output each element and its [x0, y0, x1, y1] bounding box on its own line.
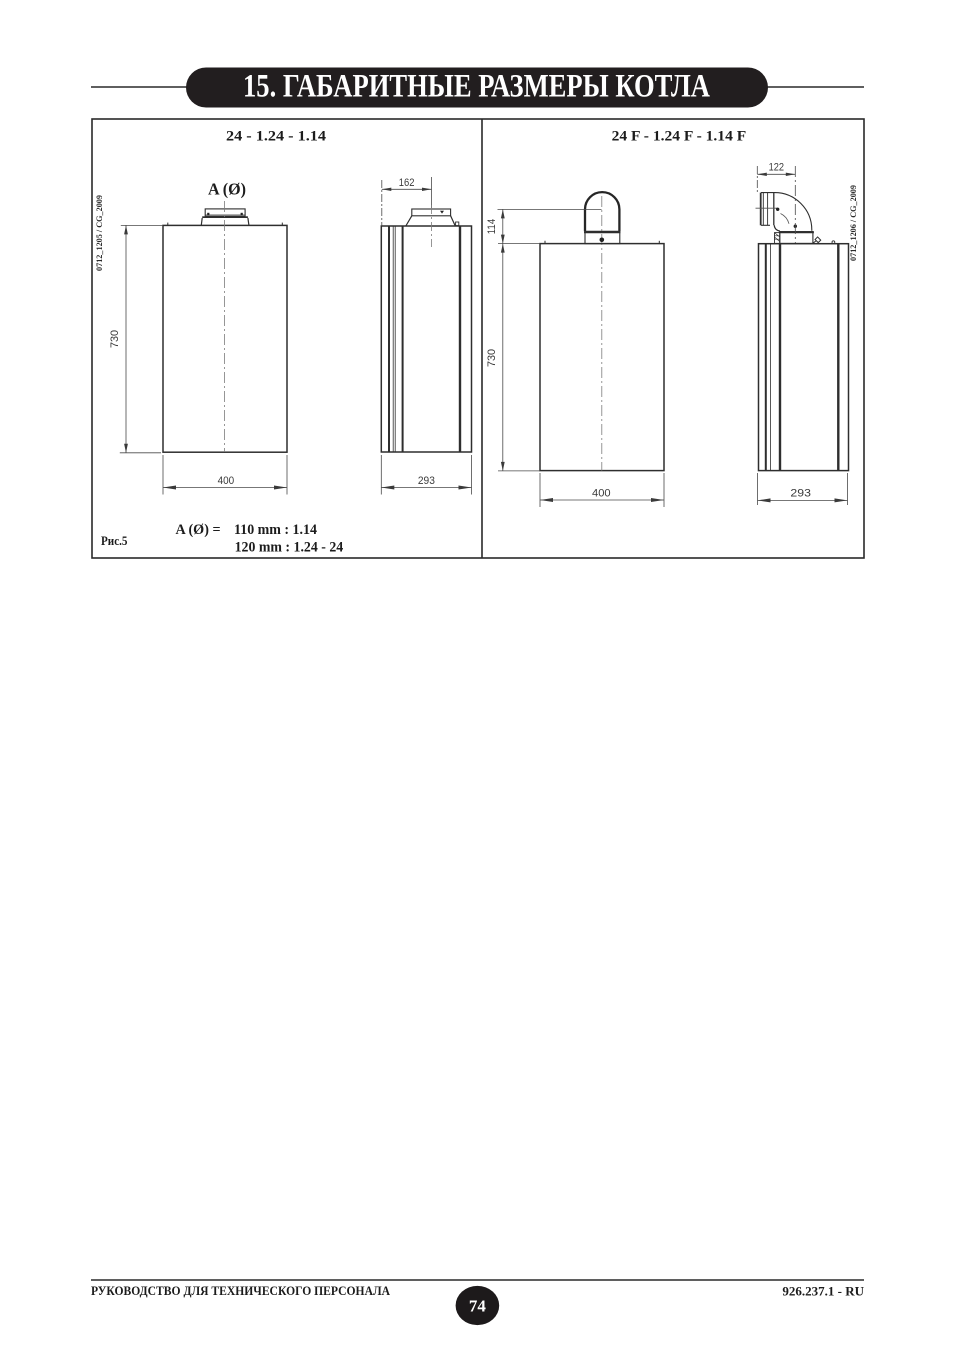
svg-text:400: 400	[218, 475, 235, 487]
svg-text:74: 74	[469, 1297, 487, 1316]
svg-text:A (Ø) =: A (Ø) =	[176, 522, 221, 538]
svg-text:730: 730	[486, 349, 498, 367]
svg-text:0712_1206 / CG_2009: 0712_1206 / CG_2009	[849, 185, 858, 261]
svg-text:730: 730	[109, 330, 121, 348]
svg-text:293: 293	[790, 488, 811, 500]
svg-text:400: 400	[592, 488, 611, 500]
svg-text:162: 162	[399, 177, 415, 189]
svg-text:122: 122	[769, 162, 784, 174]
svg-text:A (Ø): A (Ø)	[208, 180, 246, 199]
svg-text:293: 293	[418, 475, 435, 487]
svg-text:120 mm : 1.24 - 24: 120 mm : 1.24 - 24	[235, 540, 344, 556]
svg-text:24 - 1.24 - 1.14: 24 - 1.24 - 1.14	[226, 129, 326, 145]
svg-text:24 F - 1.24 F - 1.14 F: 24 F - 1.24 F - 1.14 F	[612, 129, 747, 145]
svg-text:110 mm : 1.14: 110 mm : 1.14	[234, 522, 317, 538]
svg-text:926.237.1 - RU: 926.237.1 - RU	[782, 1284, 864, 1299]
svg-text:114: 114	[486, 219, 498, 235]
svg-text:15. ГАБАРИТНЫЕ РАЗМЕРЫ КОТЛА: 15. ГАБАРИТНЫЕ РАЗМЕРЫ КОТЛА	[243, 69, 710, 105]
svg-text:РУКОВОДСТВО ДЛЯ ТЕХНИЧЕСКОГО П: РУКОВОДСТВО ДЛЯ ТЕХНИЧЕСКОГО ПЕРСОНАЛА	[91, 1283, 391, 1298]
svg-text:Рис.5: Рис.5	[101, 534, 128, 548]
svg-text:0712_1205 / CG_2009: 0712_1205 / CG_2009	[95, 195, 104, 271]
